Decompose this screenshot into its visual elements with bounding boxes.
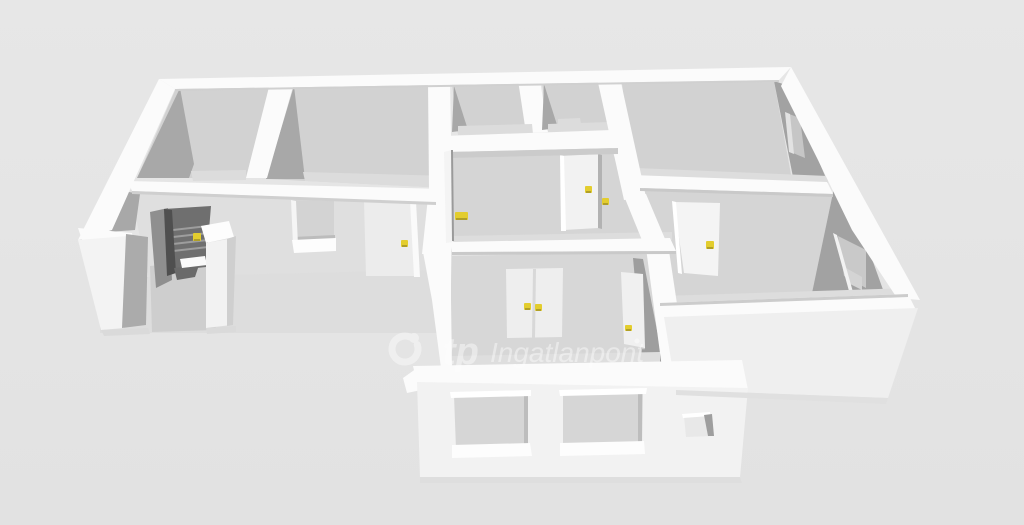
svg-text:tp: tp xyxy=(443,331,479,373)
svg-text:Ingatlanpont: Ingatlanpont xyxy=(490,337,645,368)
